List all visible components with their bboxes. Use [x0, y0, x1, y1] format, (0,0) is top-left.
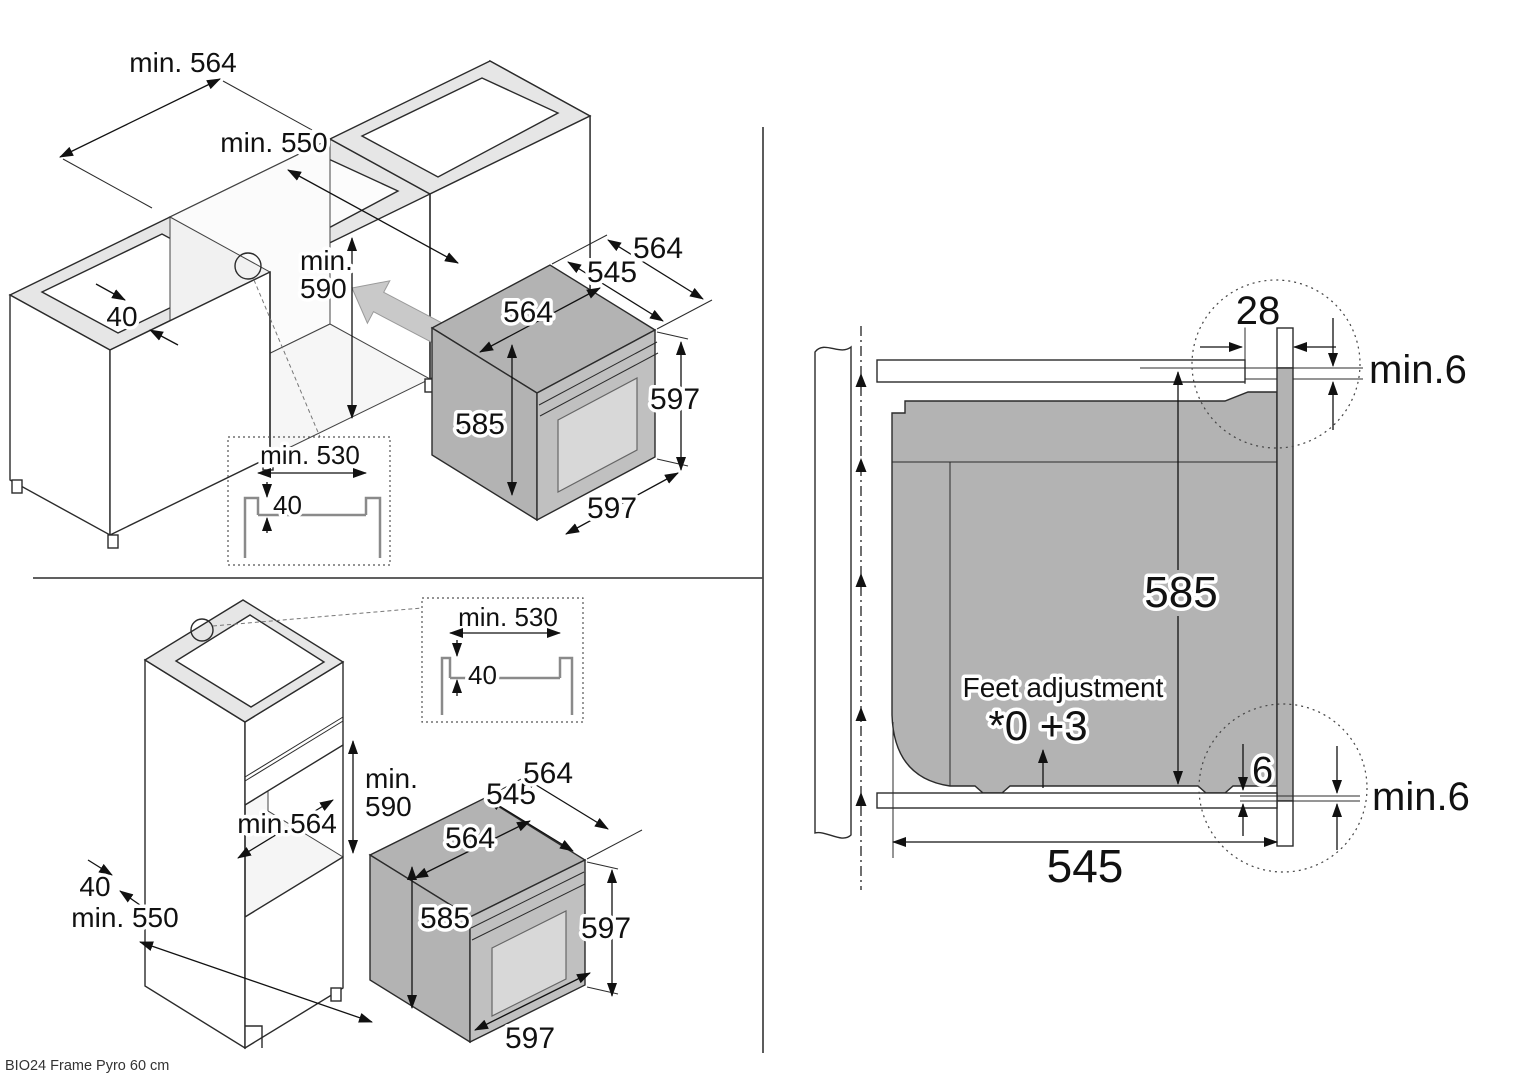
dim-label-niche-depth: min. 550	[71, 902, 178, 933]
dim-label-body-depth: 545	[1047, 840, 1124, 892]
dim-label-niche-width: min. 564	[129, 47, 236, 78]
dim-label-oven-top-width: 564	[503, 296, 553, 329]
oven-front-frame	[1277, 328, 1293, 846]
installation-diagram-page: min. 564 min. 550 min. 590 40 564 545 56…	[0, 0, 1527, 1080]
dim-label-niche-height-1: min.	[365, 763, 418, 794]
diagram-canvas: min. 564 min. 550 min. 590 40 564 545 56…	[0, 0, 1527, 1080]
tall-cabinet-leg	[331, 988, 341, 1001]
dim-label-oven-top-width: 564	[445, 822, 495, 855]
dim-label-oven-body-height: 585	[455, 408, 505, 441]
tall-cabinet-left-face	[145, 660, 245, 1048]
inset-dim-depth: 40	[273, 490, 302, 520]
dim-label-oven-body-depth: 545	[587, 256, 637, 289]
dim-label-niche-height-2: 590	[300, 273, 347, 304]
model-label: BIO24 Frame Pyro 60 cm	[5, 1058, 169, 1074]
dim-label-oven-front-width: 597	[587, 492, 637, 525]
dim-label-oven-total-depth: 564	[633, 232, 683, 265]
dim-label-niche-height-1: min.	[300, 245, 353, 276]
feet-adjustment-values: *0 +3	[988, 702, 1087, 749]
dim-label-rail-thickness: 40	[79, 871, 110, 902]
dim-label-oven-front-height: 597	[581, 912, 631, 945]
worktop-section	[877, 360, 1245, 382]
ventilation-flow-line	[856, 326, 867, 890]
bottom-shelf-section	[877, 793, 1277, 808]
dim-label-niche-width: min.564	[237, 808, 337, 839]
cross-section-panel: 28 min.6 585 Feet adjustment *0 +3 6	[815, 280, 1470, 892]
inset-dim-width-tall: min. 530	[458, 602, 558, 632]
tall-cabinet-panel: min. 530 40 min. 590 min.564 40	[71, 598, 642, 1055]
dim-label-top-gap: min.6	[1369, 348, 1467, 392]
dim-label-bottom-overlap: 6	[1252, 750, 1273, 792]
dim-label-frame-overlap: 28	[1236, 289, 1281, 333]
inset-dim-depth-tall: 40	[468, 660, 497, 690]
dim-label-rail-thickness: 40	[106, 301, 137, 332]
dim-label-body-height: 585	[1144, 568, 1217, 617]
inset-dim-width: min. 530	[260, 440, 360, 470]
dim-label-oven-front-width: 597	[505, 1022, 555, 1055]
dim-label-niche-height-2: 590	[365, 791, 412, 822]
feet-adjustment-title: Feet adjustment	[963, 672, 1164, 703]
dim-label-oven-front-height: 597	[650, 383, 700, 416]
wall-section	[815, 347, 851, 838]
dim-label-oven-body-height: 585	[420, 902, 470, 935]
dim-label-oven-total-depth: 564	[523, 757, 573, 790]
dimension-bottom-gap: min.6	[1337, 746, 1470, 850]
dim-label-niche-depth: min. 550	[220, 127, 327, 158]
dimension-top-gap: min.6	[1333, 318, 1467, 430]
dim-label-bottom-gap: min.6	[1372, 775, 1470, 819]
base-cabinet-panel: min. 564 min. 550 min. 590 40 564 545 56…	[10, 47, 712, 565]
